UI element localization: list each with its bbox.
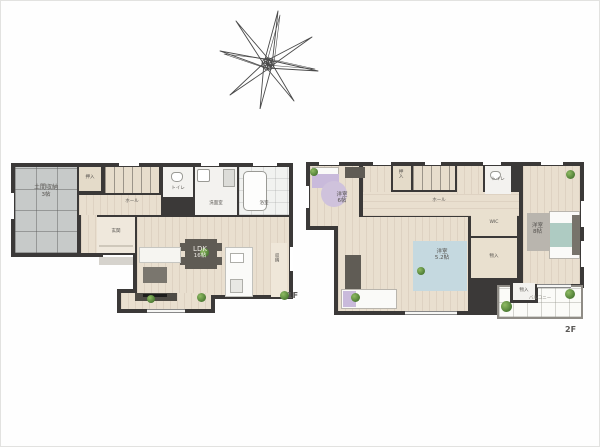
room-label-bedroom-b: 洋室 5.2帖	[425, 249, 459, 262]
room-label-oshiire-2f: 押入	[398, 169, 403, 178]
plant-icon	[351, 293, 360, 302]
plant-icon	[566, 170, 575, 179]
room-label-doma: 土間収納 3帖	[17, 185, 75, 198]
genkan-step	[99, 245, 133, 247]
room-label-storage-mid: 物入	[471, 254, 517, 259]
room-label-ldk: LDK 16帖	[181, 245, 219, 259]
floor1-tag: 1F	[287, 291, 298, 300]
room-label-bedroom-a: 洋室 6帖	[325, 192, 359, 205]
window	[373, 162, 391, 165]
room-pantry	[271, 243, 287, 297]
window	[253, 163, 277, 166]
hall-1f	[79, 195, 161, 215]
plant-icon	[501, 301, 512, 312]
floorplan-image: 土間収納 3帖 押入 ホール 玄関 トイレ 洗面室 浴室 LDK 16帖 収納 …	[0, 0, 600, 447]
window	[319, 162, 339, 165]
window	[581, 201, 584, 227]
plant-icon	[147, 295, 155, 303]
room-label-genkan: 玄関	[97, 229, 135, 234]
room-label-hall-2f: ホール	[409, 198, 469, 203]
dresser	[345, 167, 365, 178]
room-doma	[15, 167, 77, 253]
window	[405, 311, 457, 315]
sofa	[139, 247, 181, 263]
room-label-storage: 物入	[513, 288, 535, 293]
room-genkan	[97, 217, 135, 253]
stairs-2f	[413, 166, 455, 190]
room-label-washroom: 洗面室	[195, 201, 237, 206]
vanity-icon	[223, 169, 235, 187]
doma-name: 土間収納	[34, 184, 58, 191]
plant-icon	[310, 168, 318, 176]
room-label-balcony: バルコニー	[515, 296, 565, 301]
bedside-shelf	[572, 215, 580, 255]
window	[581, 241, 584, 267]
desk	[345, 255, 361, 291]
room-label-wc-2f: トイレ	[485, 177, 511, 182]
porch	[99, 257, 133, 265]
coffee-table	[143, 267, 167, 283]
window	[290, 247, 293, 271]
window	[11, 193, 14, 219]
stove-icon	[230, 279, 243, 293]
window	[119, 163, 139, 166]
room-label-pantry: 収納	[274, 253, 279, 262]
window	[306, 186, 309, 208]
room-label-hall-1f: ホール	[105, 199, 159, 204]
floor2-tag: 2F	[565, 325, 576, 334]
kitchen-sink-icon	[230, 253, 244, 263]
window	[147, 309, 185, 313]
ldk-size: 16帖	[181, 253, 219, 259]
plant-icon	[197, 293, 206, 302]
window	[537, 284, 571, 288]
room-label-master: 洋室 8帖	[524, 223, 551, 236]
bedroom-b-size: 5.2帖	[425, 255, 459, 261]
bedroom-a-size: 6帖	[325, 198, 359, 204]
room-label-bath: 浴室	[239, 201, 289, 206]
window	[541, 162, 563, 165]
plant-icon	[417, 267, 425, 275]
hall-2f-north	[457, 166, 483, 194]
room-label-wic: WIC	[471, 220, 517, 225]
compass-star-icon	[216, 9, 326, 109]
washing-machine-icon	[197, 169, 210, 182]
window	[483, 162, 501, 165]
window	[425, 162, 441, 165]
plant-icon	[565, 289, 575, 299]
master-size: 8帖	[524, 229, 551, 235]
room-label-wc-1f: トイレ	[163, 186, 193, 191]
toilet-icon	[171, 172, 183, 182]
room-label-oshiire-1f: 押入	[79, 175, 101, 180]
stairs-1f	[105, 167, 159, 193]
ldk-name: LDK	[193, 245, 207, 253]
hall-1f-south	[81, 215, 97, 253]
window	[201, 163, 219, 166]
doma-size: 3帖	[17, 192, 75, 198]
